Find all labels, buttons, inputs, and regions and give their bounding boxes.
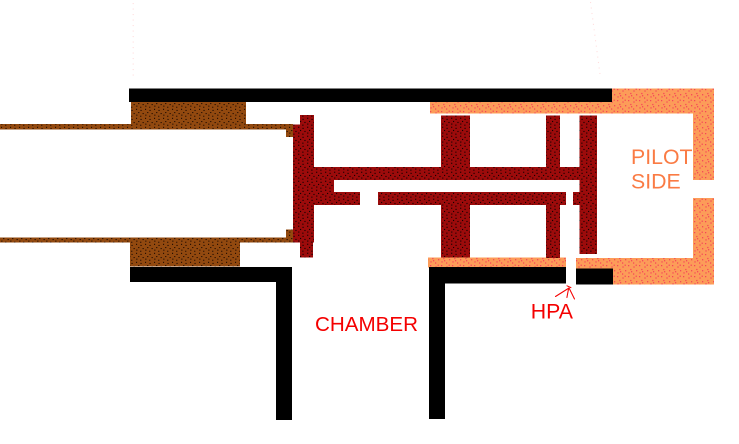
svg-text:SIDE: SIDE xyxy=(631,169,681,193)
svg-text:HPA: HPA xyxy=(531,300,574,324)
svg-text:PILOT: PILOT xyxy=(631,145,693,169)
svg-text:CHAMBER: CHAMBER xyxy=(315,313,418,336)
